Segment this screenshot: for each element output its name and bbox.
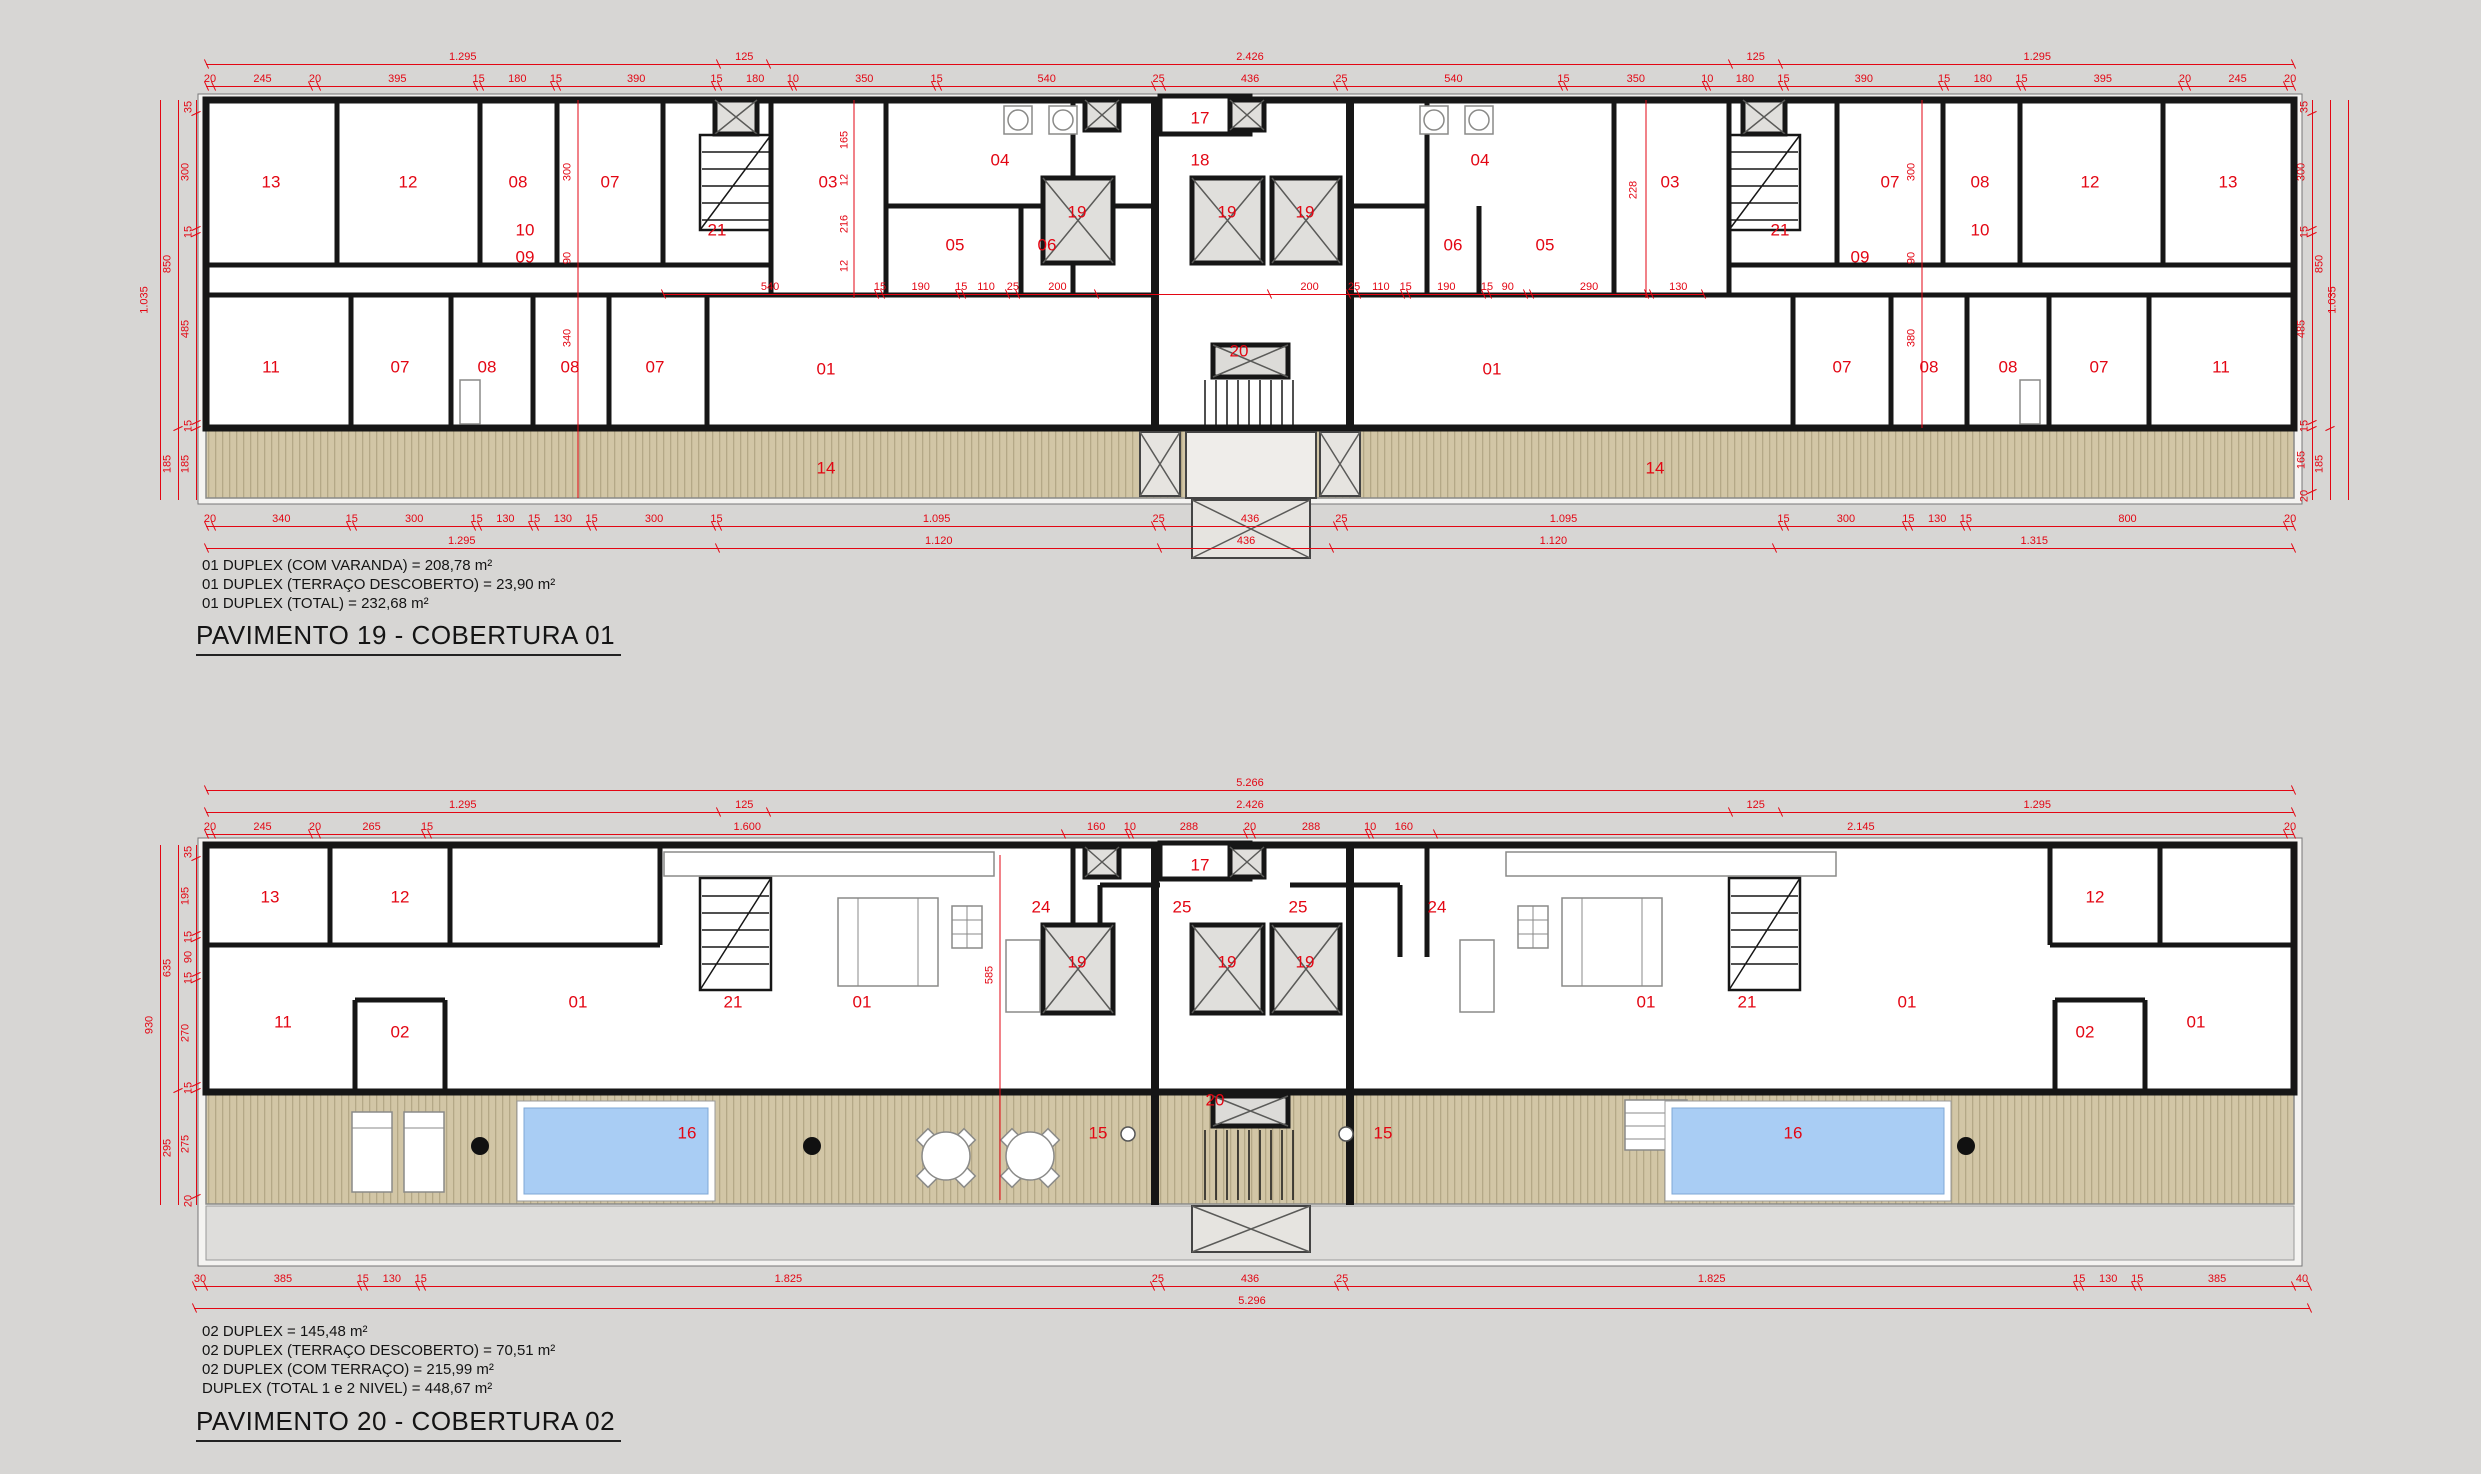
dim-segment: 160 bbox=[1372, 820, 1435, 834]
room-label: 05 bbox=[946, 237, 965, 254]
dim-segment: 395 bbox=[319, 72, 476, 86]
dim-label-vertical: 380 bbox=[1907, 329, 1918, 347]
dim-segment: 130 bbox=[2082, 1272, 2134, 1286]
dim-segment: 2.426 bbox=[769, 798, 1731, 812]
area-line: DUPLEX (TOTAL 1 e 2 NIVEL) = 448,67 m² bbox=[202, 1379, 555, 1398]
dim-segment: 190 bbox=[1409, 280, 1484, 294]
dim-segment: 436 bbox=[1164, 72, 1337, 86]
dim-segment: 540 bbox=[1346, 72, 1560, 86]
room-label: 19 bbox=[1068, 954, 1087, 971]
dim-label-vertical: 228 bbox=[1629, 181, 1640, 199]
dim-segment: 110 bbox=[1359, 280, 1403, 294]
floor-plan-1 bbox=[198, 94, 2302, 558]
dim-segment: 288 bbox=[1132, 820, 1246, 834]
dim-segment: 300 bbox=[595, 512, 714, 526]
dim-segment: 1.295 bbox=[1781, 50, 2294, 64]
dim-label-vertical: 216 bbox=[840, 215, 851, 233]
area-line: 02 DUPLEX (TERRAÇO DESCOBERTO) = 70,51 m… bbox=[202, 1341, 555, 1360]
p2-left-overall: 930 bbox=[146, 845, 161, 1205]
dim-segment: 35 bbox=[182, 845, 196, 859]
dim-label-vertical: 585 bbox=[985, 966, 996, 984]
room-label: 14 bbox=[817, 460, 836, 477]
room-label: 06 bbox=[1444, 237, 1463, 254]
room-label: 02 bbox=[391, 1024, 410, 1041]
room-label: 18 bbox=[1191, 152, 1210, 169]
dim-segment: 245 bbox=[214, 820, 311, 834]
p2-top-spans: 1.2951252.4261251.295 bbox=[206, 798, 2294, 813]
plan2-area-table: 02 DUPLEX = 145,48 m² 02 DUPLEX (TERRAÇO… bbox=[202, 1322, 555, 1398]
room-label: 15 bbox=[1089, 1125, 1108, 1142]
dim-segment: 20 bbox=[2286, 72, 2294, 86]
room-label: 21 bbox=[1738, 994, 1757, 1011]
room-label: 07 bbox=[646, 359, 665, 376]
dim-segment: 1.035 bbox=[2334, 100, 2348, 500]
dim-segment: 160 bbox=[1064, 820, 1127, 834]
p1-left-detail: 353001548515185 bbox=[182, 100, 197, 500]
room-label: 17 bbox=[1191, 857, 1210, 874]
dim-segment: 5.266 bbox=[206, 776, 2294, 790]
room-label: 14 bbox=[1646, 460, 1665, 477]
room-label: 10 bbox=[1971, 222, 1990, 239]
dim-segment: 130 bbox=[480, 512, 532, 526]
area-line: 01 DUPLEX (COM VARANDA) = 208,78 m² bbox=[202, 556, 555, 575]
dim-segment: 275 bbox=[182, 1091, 196, 1197]
room-label: 01 bbox=[817, 361, 836, 378]
room-label: 17 bbox=[1191, 110, 1210, 127]
dim-segment: 20 bbox=[2286, 512, 2294, 526]
dim-segment: 485 bbox=[182, 235, 196, 422]
dim-segment: 300 bbox=[182, 114, 196, 230]
dim-segment: 180 bbox=[1947, 72, 2018, 86]
dim-segment: 1.295 bbox=[1781, 798, 2294, 812]
room-label: 01 bbox=[1483, 361, 1502, 378]
p1-left-overall: 1.035 bbox=[146, 100, 161, 500]
room-label: 03 bbox=[1661, 174, 1680, 191]
room-label: 01 bbox=[1637, 994, 1656, 1011]
room-label: 06 bbox=[1038, 237, 1057, 254]
room-label: 12 bbox=[391, 889, 410, 906]
dim-segment: 35 bbox=[182, 100, 196, 114]
dim-label-vertical: 12 bbox=[840, 260, 851, 272]
dim-segment: 295 bbox=[164, 1091, 178, 1205]
p1-top-spans: 1.2951252.4261251.295 bbox=[206, 50, 2294, 65]
p1-interior: 5401519015110252002002511015190159029013… bbox=[663, 280, 1704, 295]
dim-segment: 20 bbox=[182, 1197, 196, 1205]
dim-segment: 35 bbox=[2298, 100, 2312, 114]
p1-left-mid: 850185 bbox=[164, 100, 179, 500]
dim-segment: 90 bbox=[182, 940, 196, 975]
room-label: 12 bbox=[2081, 174, 2100, 191]
dim-segment: 300 bbox=[1787, 512, 1906, 526]
dim-segment: 20 bbox=[2298, 492, 2312, 500]
p1-bottom-detail: 2034015300151301513015300151.09525436251… bbox=[206, 512, 2294, 527]
room-label: 15 bbox=[1374, 1125, 1393, 1142]
dim-segment: 200 bbox=[1018, 280, 1097, 294]
dim-segment: 180 bbox=[482, 72, 553, 86]
dim-label-vertical: 340 bbox=[563, 329, 574, 347]
room-label: 20 bbox=[1230, 343, 1249, 360]
p1-top-detail: 2024520395151801539015180103501554025436… bbox=[206, 72, 2294, 87]
dim-segment: 200 bbox=[1270, 280, 1349, 294]
room-label: 21 bbox=[1771, 222, 1790, 239]
room-label: 08 bbox=[509, 174, 528, 191]
floor-plan-2 bbox=[198, 838, 2302, 1266]
room-label: 01 bbox=[569, 994, 588, 1011]
room-label: 08 bbox=[478, 359, 497, 376]
dim-segment: 265 bbox=[319, 820, 424, 834]
plan2-title: PAVIMENTO 20 - COBERTURA 02 bbox=[196, 1406, 621, 1442]
dim-segment: 185 bbox=[164, 429, 178, 501]
room-label: 24 bbox=[1428, 899, 1447, 916]
area-line: 02 DUPLEX (COM TERRAÇO) = 215,99 m² bbox=[202, 1360, 555, 1379]
room-label: 07 bbox=[391, 359, 410, 376]
room-label: 07 bbox=[1881, 174, 1900, 191]
dim-segment: 1.295 bbox=[206, 50, 719, 64]
dim-segment: 300 bbox=[2298, 114, 2312, 230]
dim-segment: 540 bbox=[940, 72, 1154, 86]
p1-right-detail: 35300154851516520 bbox=[2298, 100, 2313, 500]
dim-segment: 395 bbox=[2024, 72, 2181, 86]
p1-bottom-spans: 1.2951.1204361.1201.315 bbox=[206, 534, 2294, 549]
dim-segment: 185 bbox=[182, 429, 196, 501]
room-label: 01 bbox=[1898, 994, 1917, 1011]
dim-segment: 130 bbox=[1652, 280, 1704, 294]
dim-segment bbox=[1097, 280, 1270, 294]
area-line: 01 DUPLEX (TOTAL) = 232,68 m² bbox=[202, 594, 555, 613]
dim-segment: 195 bbox=[182, 859, 196, 934]
room-label: 02 bbox=[2076, 1024, 2095, 1041]
dim-segment: 850 bbox=[164, 100, 178, 429]
dim-segment: 130 bbox=[1911, 512, 1963, 526]
dim-segment: 125 bbox=[1731, 798, 1781, 812]
room-label: 13 bbox=[261, 889, 280, 906]
dim-segment: 1.315 bbox=[1775, 534, 2294, 548]
dim-segment: 635 bbox=[164, 845, 178, 1091]
dim-segment: 125 bbox=[719, 798, 769, 812]
dim-segment: 1.825 bbox=[424, 1272, 1153, 1286]
dim-segment: 2.145 bbox=[1436, 820, 2287, 834]
dim-segment: 2.426 bbox=[769, 50, 1731, 64]
room-label: 08 bbox=[1999, 359, 2018, 376]
room-label: 21 bbox=[708, 222, 727, 239]
dim-segment: 1.120 bbox=[718, 534, 1160, 548]
p1-right-overall: 1.035 bbox=[2334, 100, 2349, 500]
room-label: 07 bbox=[2090, 359, 2109, 376]
dim-segment: 245 bbox=[2189, 72, 2286, 86]
p2-left-mid: 635295 bbox=[164, 845, 179, 1205]
dim-segment: 20 bbox=[2286, 820, 2294, 834]
dim-segment: 436 bbox=[1163, 1272, 1337, 1286]
room-label: 08 bbox=[1971, 174, 1990, 191]
room-label: 19 bbox=[1296, 954, 1315, 971]
dim-label-vertical: 90 bbox=[1907, 252, 1918, 264]
dim-segment: 1.035 bbox=[146, 100, 160, 500]
room-label: 04 bbox=[1471, 152, 1490, 169]
room-label: 20 bbox=[1206, 1092, 1225, 1109]
p2-bottom-overall: 5.296 bbox=[194, 1294, 2310, 1309]
dim-segment: 1.600 bbox=[430, 820, 1064, 834]
dim-segment: 1.120 bbox=[1332, 534, 1774, 548]
dim-segment: 485 bbox=[2298, 235, 2312, 422]
dim-segment: 165 bbox=[2298, 429, 2312, 493]
p2-top-overall: 5.266 bbox=[206, 776, 2294, 791]
room-label: 08 bbox=[1920, 359, 1939, 376]
room-label: 19 bbox=[1218, 954, 1237, 971]
room-label: 13 bbox=[2219, 174, 2238, 191]
dim-segment: 130 bbox=[366, 1272, 418, 1286]
dim-segment: 288 bbox=[1254, 820, 1368, 834]
dim-segment: 90 bbox=[1490, 280, 1526, 294]
room-label: 25 bbox=[1289, 899, 1308, 916]
room-label: 11 bbox=[262, 359, 280, 376]
room-label: 16 bbox=[678, 1125, 697, 1142]
dim-segment: 1.095 bbox=[1346, 512, 1780, 526]
dim-segment: 850 bbox=[2316, 100, 2330, 429]
area-line: 02 DUPLEX = 145,48 m² bbox=[202, 1322, 555, 1341]
room-label: 07 bbox=[1833, 359, 1852, 376]
plan1-area-table: 01 DUPLEX (COM VARANDA) = 208,78 m² 01 D… bbox=[202, 556, 555, 613]
floor-plan-linework bbox=[0, 0, 2481, 1474]
p2-bottom-detail: 3038515130151.82525436251.82515130153854… bbox=[194, 1272, 2310, 1287]
dim-segment: 800 bbox=[1969, 512, 2286, 526]
dim-segment: 125 bbox=[719, 50, 769, 64]
room-label: 09 bbox=[1851, 249, 1870, 266]
dim-segment: 125 bbox=[1731, 50, 1781, 64]
p2-left-detail: 351951590152701527520 bbox=[182, 845, 197, 1205]
dim-segment: 40 bbox=[2294, 1272, 2310, 1286]
dim-segment: 245 bbox=[214, 72, 311, 86]
dim-segment: 5.296 bbox=[194, 1294, 2310, 1308]
room-label: 05 bbox=[1536, 237, 1555, 254]
dim-segment: 350 bbox=[1566, 72, 1705, 86]
dim-segment: 540 bbox=[663, 280, 877, 294]
room-label: 21 bbox=[724, 994, 743, 1011]
dim-segment: 350 bbox=[795, 72, 934, 86]
dim-segment: 390 bbox=[1787, 72, 1942, 86]
dim-segment: 130 bbox=[537, 512, 589, 526]
dim-segment: 436 bbox=[1164, 512, 1337, 526]
area-line: 01 DUPLEX (TERRAÇO DESCOBERTO) = 23,90 m… bbox=[202, 575, 555, 594]
room-label: 11 bbox=[2212, 359, 2230, 376]
dim-segment: 290 bbox=[1532, 280, 1647, 294]
plan1-title: PAVIMENTO 19 - COBERTURA 01 bbox=[196, 620, 621, 656]
dim-label-vertical: 165 bbox=[840, 131, 851, 149]
room-label: 19 bbox=[1296, 204, 1315, 221]
dim-segment: 185 bbox=[2316, 429, 2330, 501]
room-label: 12 bbox=[399, 174, 418, 191]
room-label: 08 bbox=[561, 359, 580, 376]
dim-segment: 385 bbox=[2140, 1272, 2294, 1286]
dim-segment: 300 bbox=[355, 512, 474, 526]
room-label: 19 bbox=[1068, 204, 1087, 221]
dim-segment: 436 bbox=[1160, 534, 1332, 548]
dim-segment: 1.825 bbox=[1347, 1272, 2076, 1286]
dim-segment: 1.095 bbox=[720, 512, 1154, 526]
room-label: 09 bbox=[516, 249, 535, 266]
dim-segment: 390 bbox=[559, 72, 714, 86]
p2-top-detail: 2024520265151.6001601028820288101602.145… bbox=[206, 820, 2294, 835]
drawing-canvas: 1.2951252.4261251.2952024520395151801539… bbox=[0, 0, 2481, 1474]
room-label: 13 bbox=[262, 174, 281, 191]
room-label: 16 bbox=[1784, 1125, 1803, 1142]
room-label: 25 bbox=[1173, 899, 1192, 916]
dim-segment: 385 bbox=[206, 1272, 360, 1286]
room-label: 01 bbox=[2187, 1014, 2206, 1031]
room-label: 19 bbox=[1218, 204, 1237, 221]
dim-segment: 270 bbox=[182, 981, 196, 1086]
dim-label-vertical: 300 bbox=[563, 163, 574, 181]
dim-label-vertical: 12 bbox=[840, 174, 851, 186]
room-label: 10 bbox=[516, 222, 535, 239]
room-label: 07 bbox=[601, 174, 620, 191]
room-label: 04 bbox=[991, 152, 1010, 169]
dim-segment: 930 bbox=[146, 845, 160, 1205]
dim-segment: 340 bbox=[214, 512, 349, 526]
dim-segment: 190 bbox=[883, 280, 958, 294]
dim-label-vertical: 300 bbox=[1907, 163, 1918, 181]
dim-segment: 180 bbox=[720, 72, 791, 86]
dim-segment: 180 bbox=[1709, 72, 1780, 86]
dim-segment: 110 bbox=[964, 280, 1008, 294]
room-label: 11 bbox=[274, 1014, 292, 1031]
room-label: 24 bbox=[1032, 899, 1051, 916]
room-label: 03 bbox=[819, 174, 838, 191]
dim-label-vertical: 90 bbox=[563, 252, 574, 264]
dim-segment: 1.295 bbox=[206, 798, 719, 812]
room-label: 12 bbox=[2086, 889, 2105, 906]
room-label: 01 bbox=[853, 994, 872, 1011]
dim-segment: 1.295 bbox=[206, 534, 718, 548]
